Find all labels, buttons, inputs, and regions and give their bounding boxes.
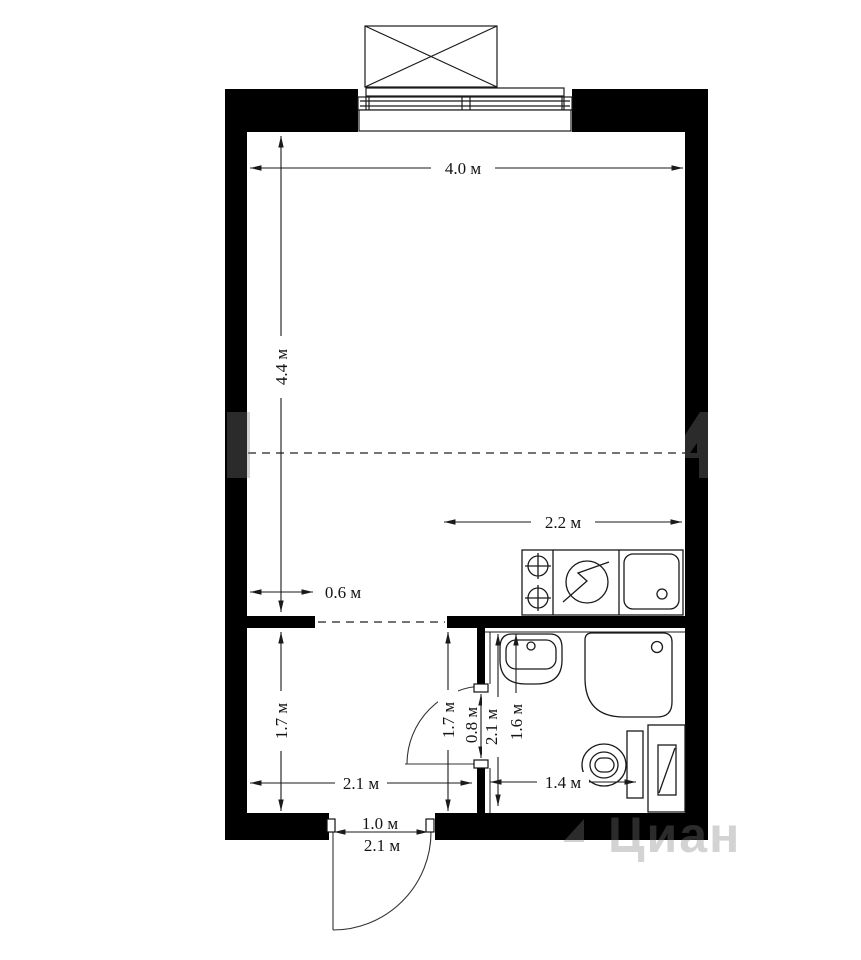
wall-bottom-left (225, 813, 329, 840)
water-heater (648, 725, 685, 812)
wall-partition-stub-left (247, 616, 315, 628)
dim-entry-door-width: 1.0 м (362, 814, 399, 833)
window-balcony (358, 26, 572, 131)
entry-door-jamb-left (327, 819, 335, 832)
dim-bath-door-width: 0.8 м (462, 707, 481, 744)
toilet (582, 731, 643, 798)
entry-door-jamb-right (426, 819, 434, 832)
shower-tray (585, 633, 672, 717)
watermark-fragment-left-wall (227, 412, 250, 478)
dim-entry-wall-width: 2.1 м (364, 836, 401, 855)
washbasin (500, 634, 562, 684)
dimension-labels: 4.0 м 4.4 м 2.2 м 0.6 м 1.7 м 1.7 м 0.8 … (272, 159, 581, 855)
kitchen (522, 550, 683, 615)
wall-right (685, 132, 708, 840)
balcony-slab (366, 88, 564, 96)
dim-main-depth: 4.4 м (272, 349, 291, 386)
bath-door-jamb-bottom (474, 760, 488, 768)
wall-bath-partition-upper (477, 628, 485, 684)
floorplan-page: 4.0 м 4.4 м 2.2 м 0.6 м 1.7 м 1.7 м 0.8 … (0, 0, 861, 960)
window-sill (359, 110, 571, 131)
wall-bath-partition-lower (477, 768, 485, 813)
watermark-fragments (227, 412, 708, 478)
dim-bath-sink-zone: 1.6 м (507, 704, 526, 741)
dim-main-width: 4.0 м (445, 159, 482, 178)
dim-bath-depth: 2.1 м (482, 709, 501, 746)
dim-hall-width: 2.1 м (343, 774, 380, 793)
wall-top-right (572, 89, 708, 132)
dim-ledge-width: 0.6 м (325, 583, 362, 602)
dim-hall-depth-left: 1.7 м (272, 703, 291, 740)
window-frame (358, 97, 572, 110)
dim-kitchen-width: 2.2 м (545, 513, 582, 532)
wall-bathroom-top (447, 616, 685, 628)
bath-door-jamb-top (474, 684, 488, 692)
floorplan-drawing: 4.0 м 4.4 м 2.2 м 0.6 м 1.7 м 1.7 м 0.8 … (0, 0, 861, 960)
dimension-label-backgrounds (271, 158, 595, 792)
brand-watermark-text: Циан (608, 807, 741, 863)
dim-hall-depth-right: 1.7 м (439, 702, 458, 739)
dim-bath-width: 1.4 м (545, 773, 582, 792)
